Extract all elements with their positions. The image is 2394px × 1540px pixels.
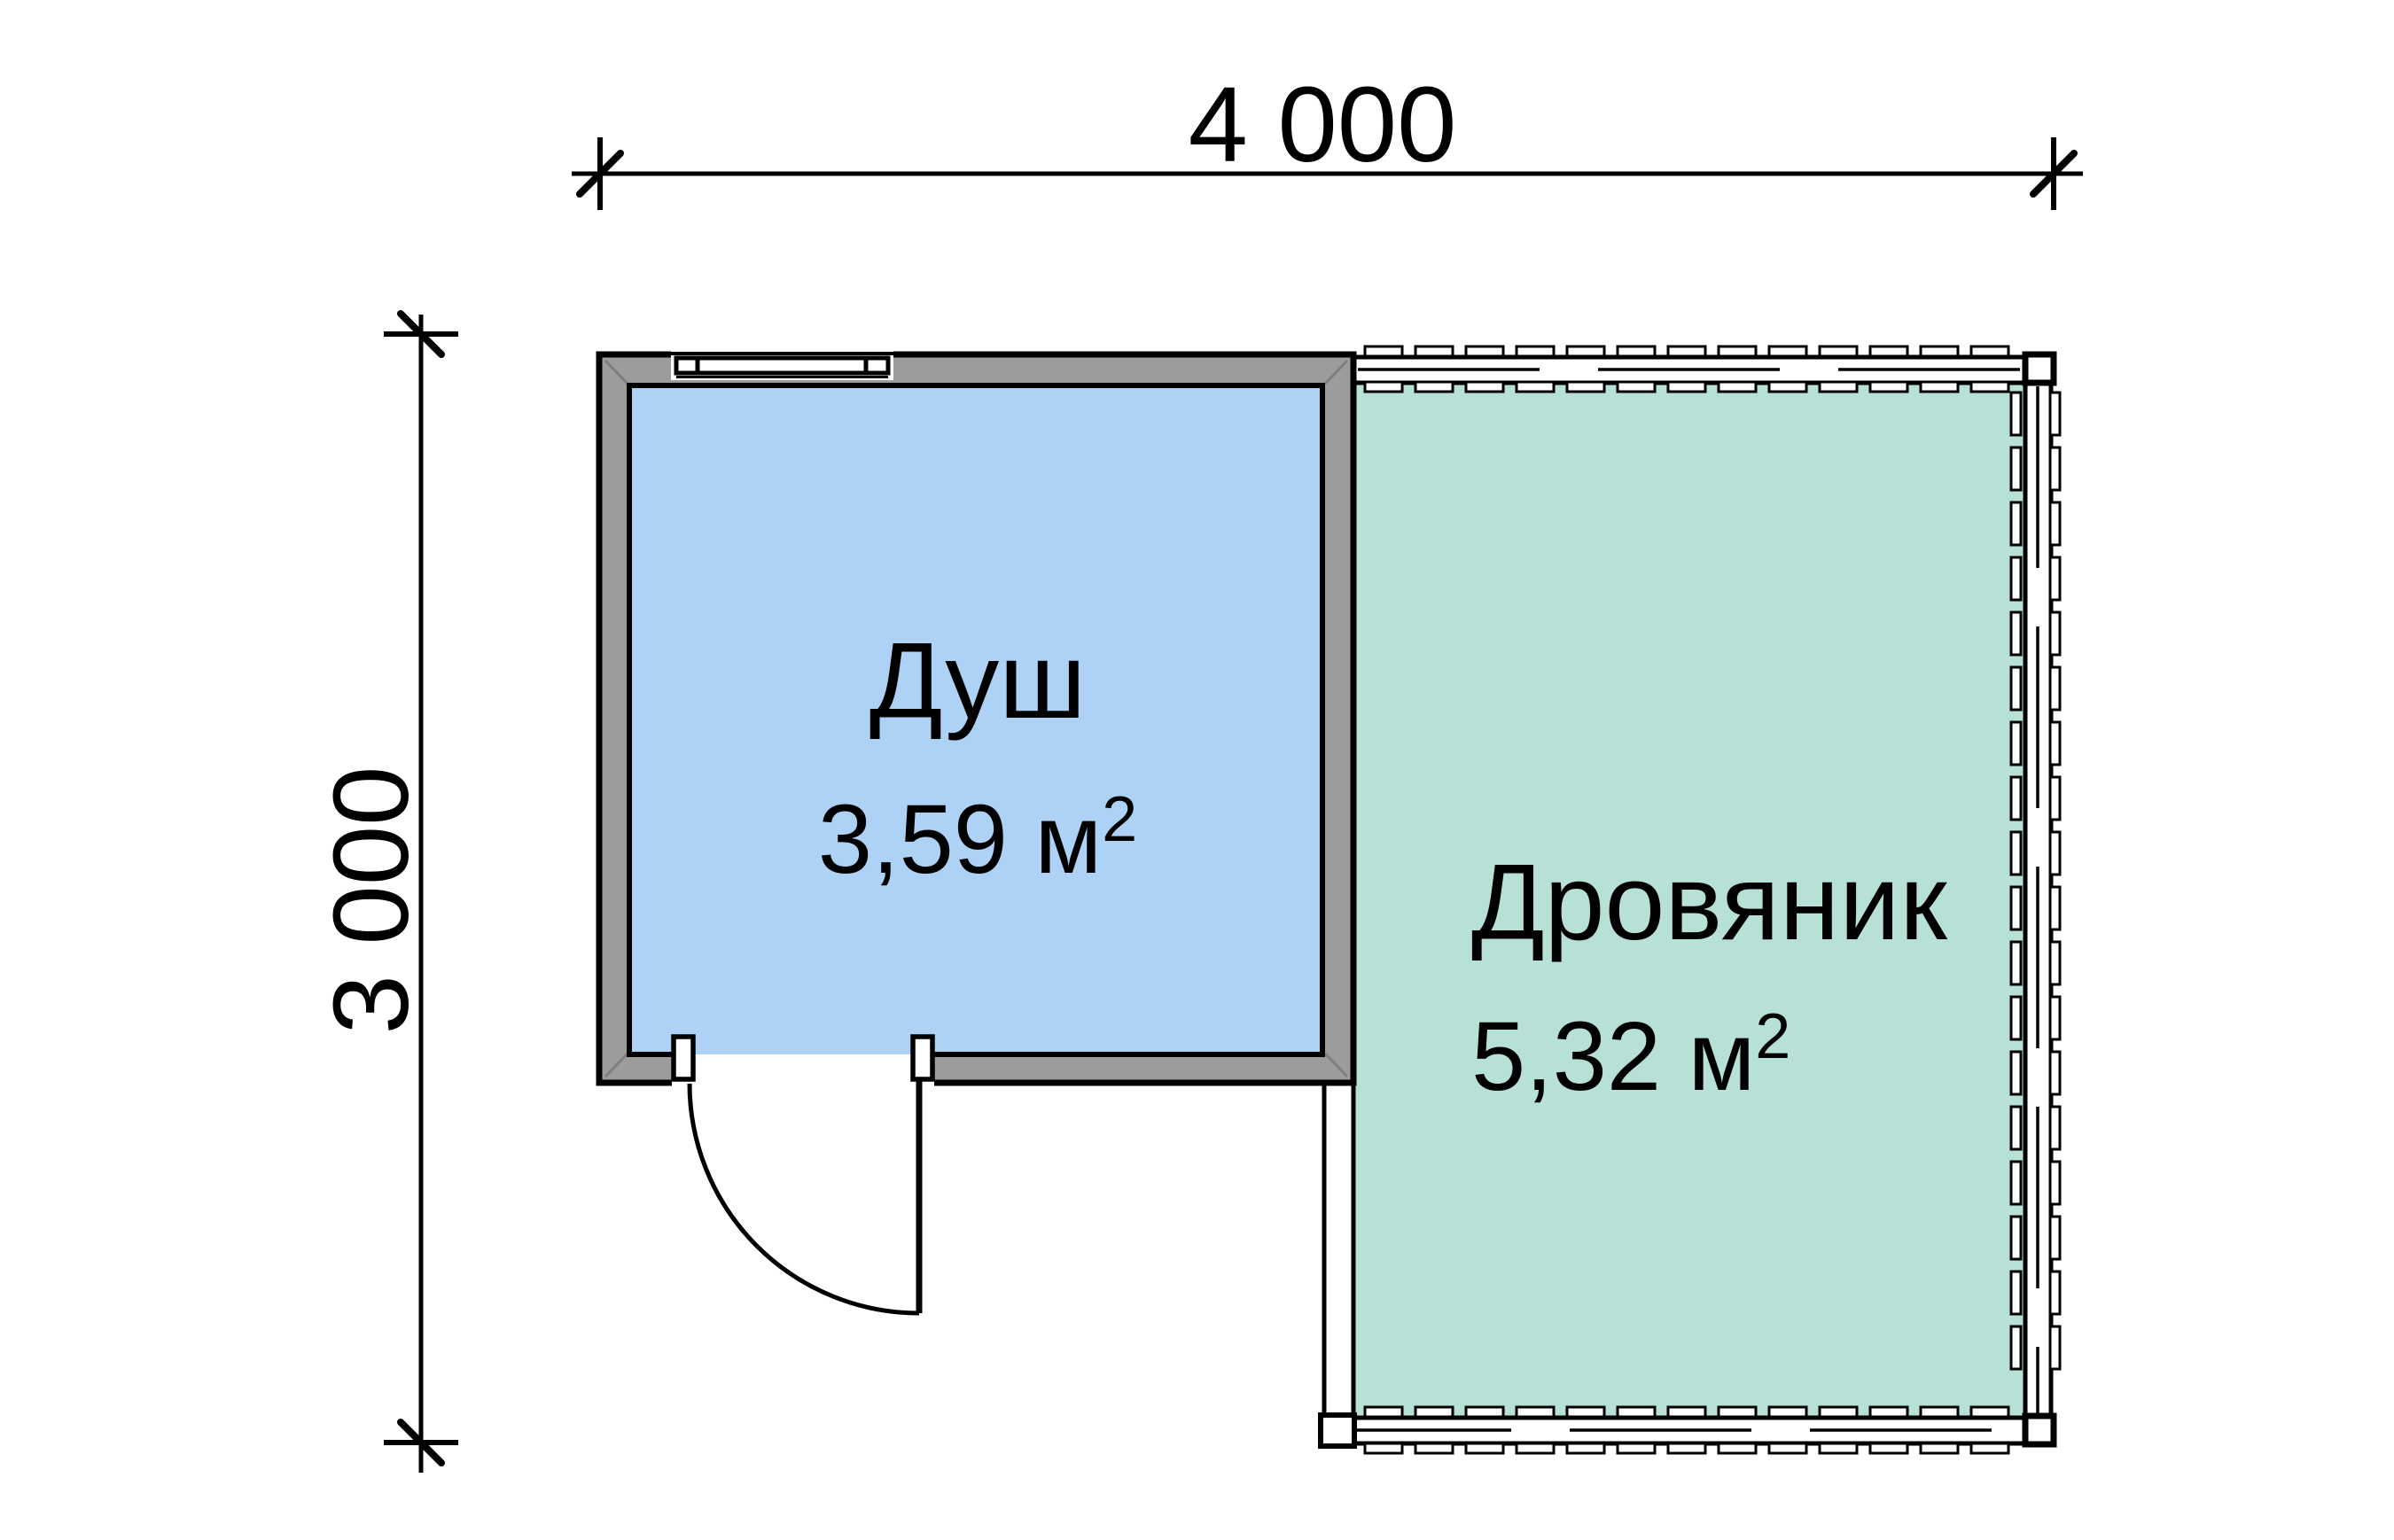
- cladding-tick: [1971, 1443, 2008, 1453]
- woodshed-wall-right: [2025, 381, 2051, 1418]
- cladding-tick: [1365, 382, 1402, 392]
- door-jamb-left: [674, 1037, 693, 1079]
- cladding-tick: [1466, 1407, 1503, 1417]
- cladding-tick: [2011, 1326, 2021, 1369]
- window: [671, 351, 893, 380]
- cladding-tick: [2011, 1052, 2021, 1094]
- cladding-tick: [1365, 346, 1402, 356]
- cladding-tick: [2050, 832, 2060, 875]
- cladding-tick: [1921, 346, 1958, 356]
- cladding-tick: [1517, 346, 1554, 356]
- cladding-tick: [1415, 382, 1453, 392]
- cladding-tick: [1971, 1407, 2008, 1417]
- cladding-tick: [1921, 1443, 1958, 1453]
- cladding-tick: [2011, 1107, 2021, 1149]
- cladding-tick: [1769, 1443, 1806, 1453]
- cladding-tick: [1567, 1407, 1604, 1417]
- cladding-tick: [1870, 382, 1907, 392]
- cladding-tick: [2011, 1162, 2021, 1204]
- cladding-tick: [2050, 1052, 2060, 1094]
- cladding-tick: [2011, 557, 2021, 600]
- cladding-tick: [1517, 1407, 1554, 1417]
- room-shower-area: 3,59 м2: [818, 784, 1137, 894]
- corner-post-bottom-left: [1321, 1415, 1354, 1446]
- cladding-tick: [1719, 1443, 1756, 1453]
- cladding-tick: [1769, 382, 1806, 392]
- cladding-tick: [2050, 1162, 2060, 1204]
- cladding-tick: [1668, 382, 1705, 392]
- woodshed-wall-bottom: [1324, 1418, 2025, 1443]
- cladding-tick: [1415, 1407, 1453, 1417]
- cladding-tick: [1820, 1443, 1857, 1453]
- dimension-top-label: 4 000: [1189, 64, 1457, 184]
- cladding-tick: [1870, 346, 1907, 356]
- cladding-tick: [2011, 612, 2021, 655]
- cladding-tick: [2011, 502, 2021, 545]
- cladding-tick: [2050, 393, 2060, 435]
- cladding-tick: [1466, 1443, 1503, 1453]
- cladding-tick: [2011, 1272, 2021, 1314]
- cladding-tick: [1921, 382, 1958, 392]
- cladding-tick: [2050, 502, 2060, 545]
- cladding-tick: [2011, 887, 2021, 929]
- cladding-tick: [2011, 1217, 2021, 1259]
- cladding-tick: [1668, 1443, 1705, 1453]
- cladding-tick: [2050, 777, 2060, 820]
- cladding-tick: [2050, 612, 2060, 655]
- cladding-tick: [2050, 667, 2060, 710]
- cladding-tick: [2011, 393, 2021, 435]
- cladding-tick: [2050, 447, 2060, 490]
- cladding-tick: [1921, 1407, 1958, 1417]
- window-frame: [676, 358, 888, 373]
- door-threshold-inner: [693, 1048, 913, 1054]
- cladding-tick: [1971, 382, 2008, 392]
- cladding-tick: [1870, 1443, 1907, 1453]
- cladding-tick: [2050, 1107, 2060, 1149]
- cladding-tick: [1719, 382, 1756, 392]
- cladding-tick: [1820, 382, 1857, 392]
- room-woodshed-area: 5,32 м2: [1471, 1001, 1790, 1111]
- cladding-tick: [1567, 346, 1604, 356]
- woodshed-wall-left-lower: [1324, 1083, 1353, 1419]
- cladding-tick: [1719, 346, 1756, 356]
- woodshed-wall-top: [1353, 357, 2025, 383]
- cladding-tick: [2050, 722, 2060, 765]
- cladding-tick: [1820, 1407, 1857, 1417]
- cladding-tick: [2050, 887, 2060, 929]
- corner-post-bottom-right: [2025, 1416, 2054, 1444]
- cladding-tick: [1466, 382, 1503, 392]
- cladding-tick: [1618, 1407, 1655, 1417]
- cladding-tick: [1820, 346, 1857, 356]
- cladding-tick: [2011, 447, 2021, 490]
- cladding-tick: [1618, 1443, 1655, 1453]
- cladding-tick: [1466, 346, 1503, 356]
- cladding-tick: [1517, 1443, 1554, 1453]
- cladding-tick: [1870, 1407, 1907, 1417]
- cladding-tick: [2011, 997, 2021, 1039]
- cladding-tick: [1618, 346, 1655, 356]
- floor-plan-page: 4 000 3 000: [0, 0, 2394, 1540]
- room-shower-label: Душ: [869, 620, 1086, 741]
- cladding-tick: [2011, 832, 2021, 875]
- door-jamb-right: [913, 1037, 932, 1079]
- cladding-tick: [1971, 346, 2008, 356]
- cladding-tick: [1365, 1407, 1402, 1417]
- cladding-tick: [2050, 942, 2060, 984]
- cladding-tick: [1719, 1407, 1756, 1417]
- cladding-tick: [1415, 346, 1453, 356]
- cladding-tick: [1769, 346, 1806, 356]
- cladding-tick: [2050, 1217, 2060, 1259]
- corner-post-top-right: [2025, 354, 2054, 383]
- cladding-tick: [1567, 1443, 1604, 1453]
- cladding-tick: [1769, 1407, 1806, 1417]
- floor-plan-svg: 4 000 3 000: [0, 0, 2394, 1540]
- cladding-tick: [2050, 557, 2060, 600]
- cladding-tick: [2050, 997, 2060, 1039]
- cladding-tick: [2011, 667, 2021, 710]
- cladding-tick: [1365, 1443, 1402, 1453]
- door-opening: [672, 1054, 934, 1087]
- cladding-tick: [1618, 382, 1655, 392]
- cladding-tick: [2011, 942, 2021, 984]
- cladding-tick: [2050, 1272, 2060, 1314]
- cladding-tick: [1415, 1443, 1453, 1453]
- dimension-left-label: 3 000: [310, 766, 431, 1035]
- cladding-tick: [2011, 722, 2021, 765]
- cladding-tick: [1517, 382, 1554, 392]
- cladding-tick: [1668, 346, 1705, 356]
- cladding-tick: [2050, 1326, 2060, 1369]
- cladding-tick: [2011, 777, 2021, 820]
- room-woodshed-label: Дровяник: [1471, 842, 1947, 962]
- cladding-tick: [1668, 1407, 1705, 1417]
- cladding-tick: [1567, 382, 1604, 392]
